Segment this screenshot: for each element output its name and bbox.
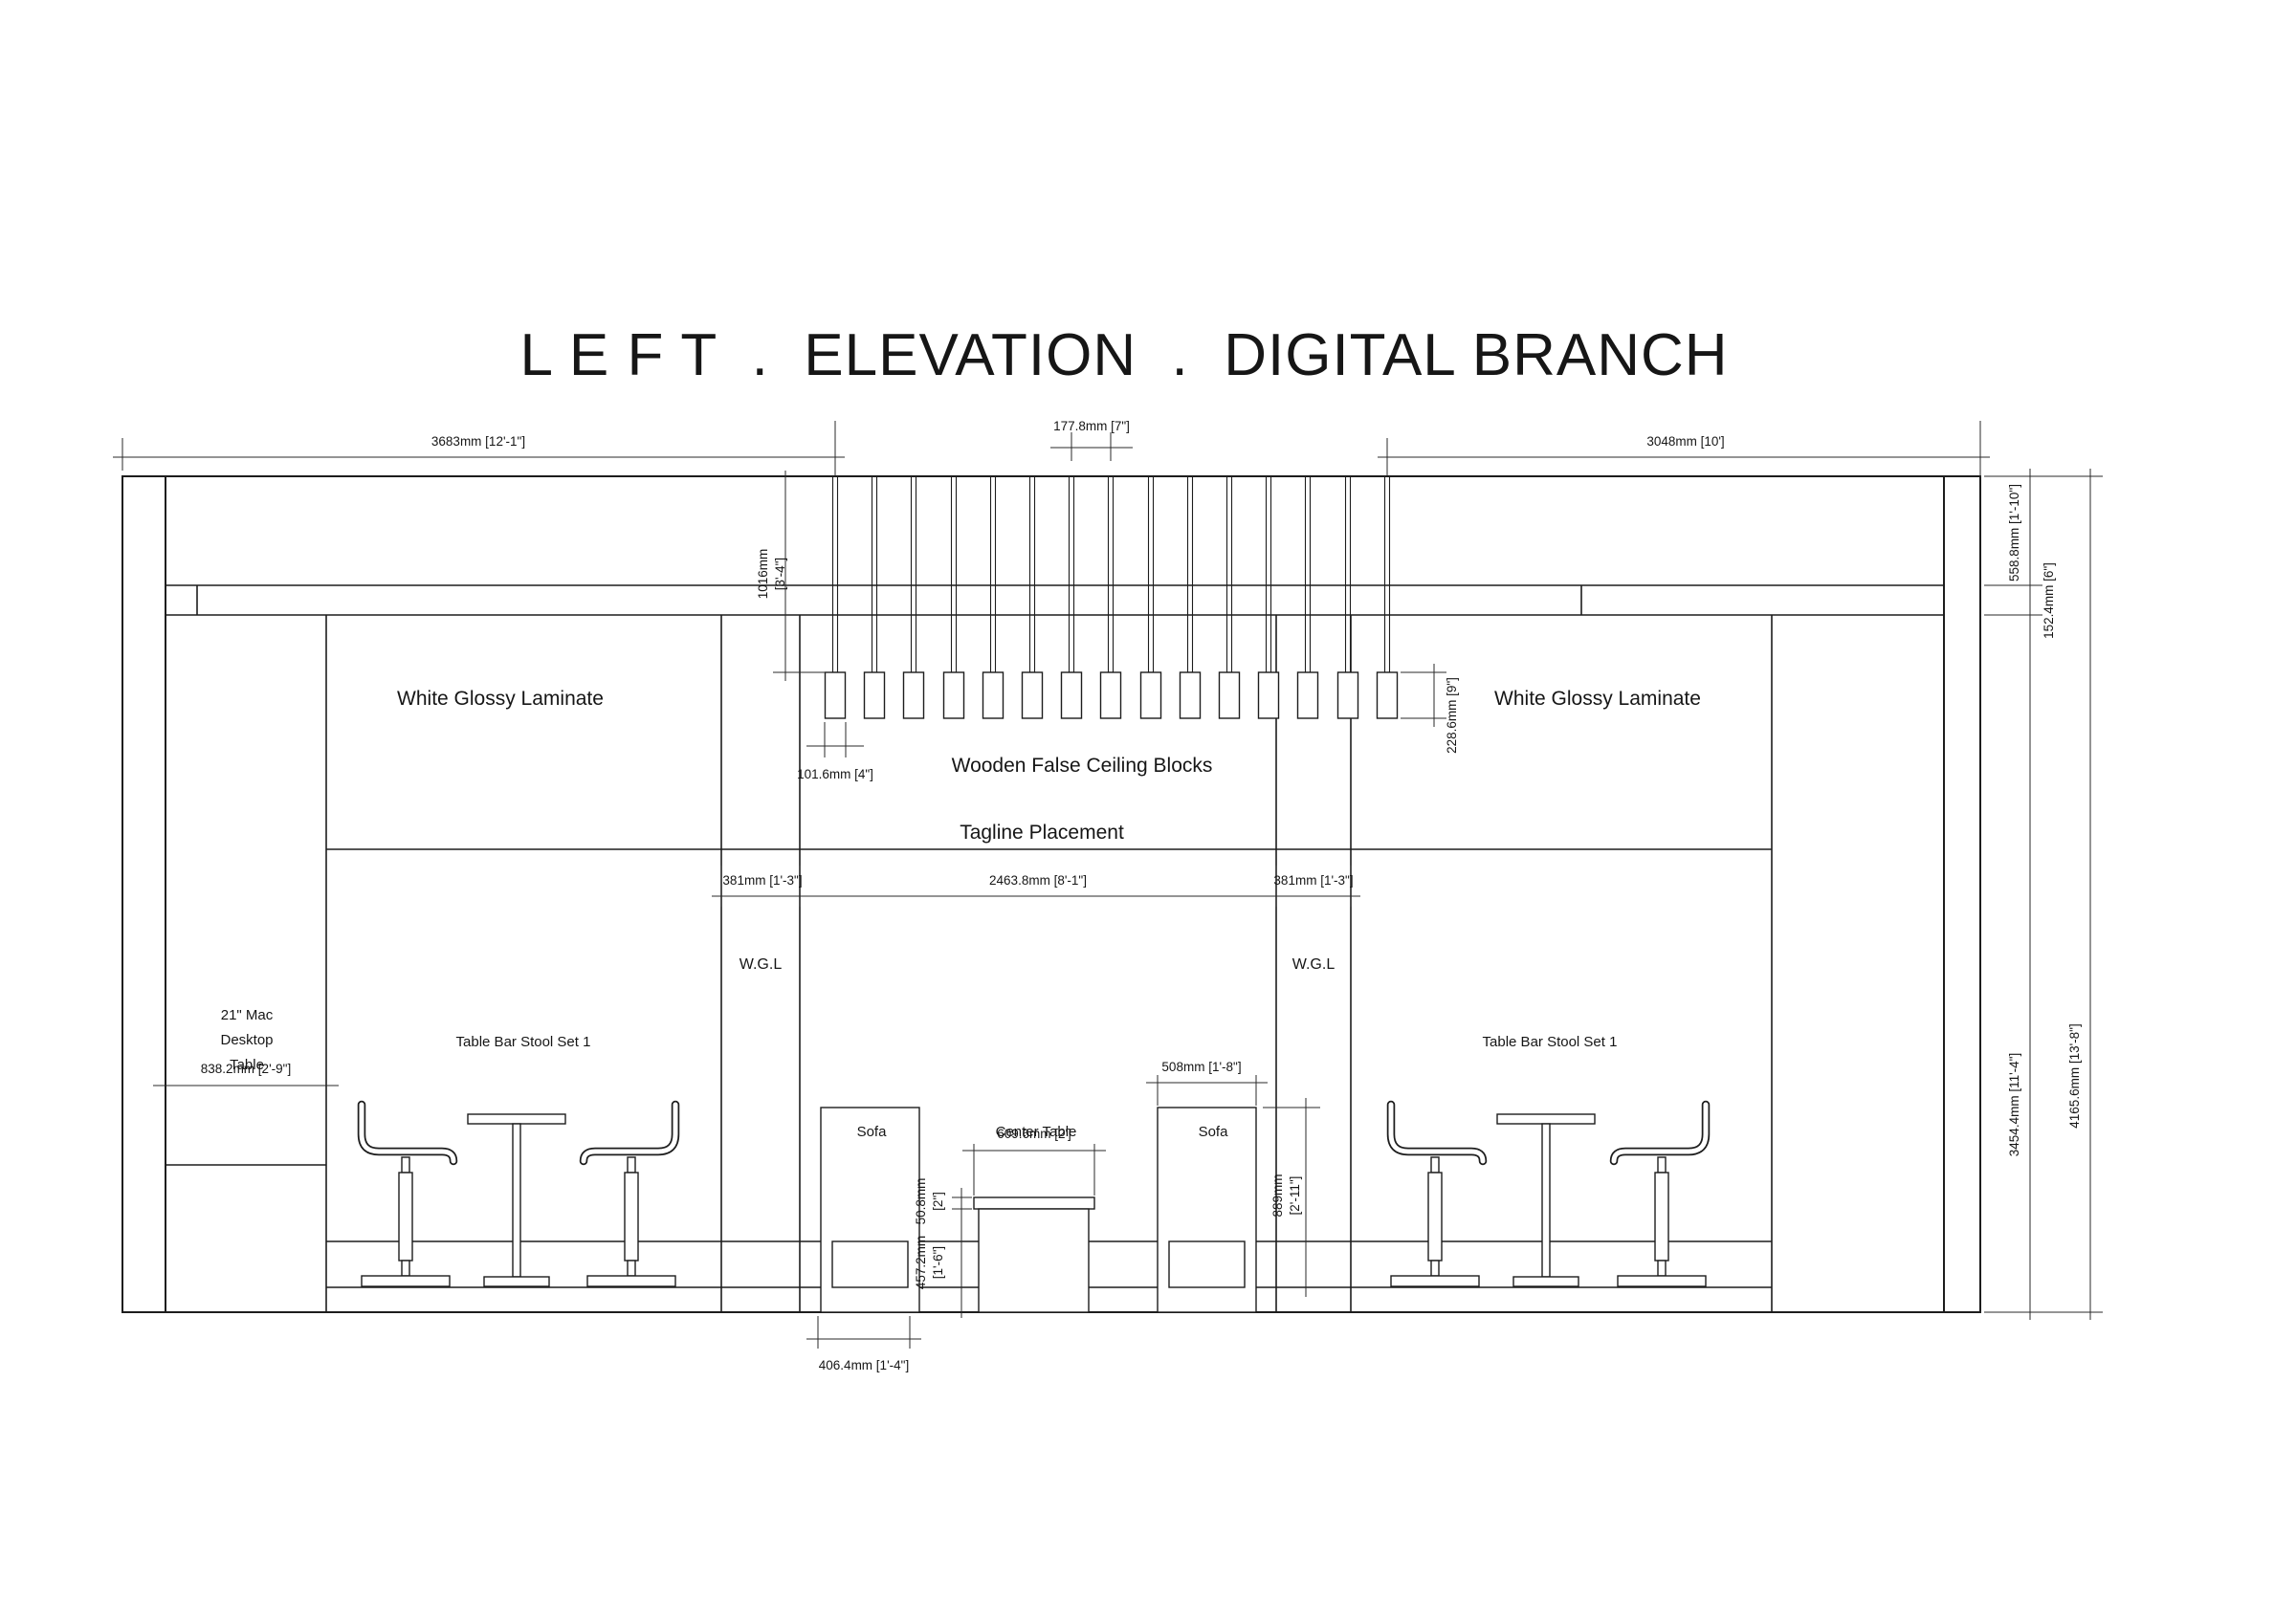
center-table-top: [974, 1197, 1094, 1209]
ceiling-pendant: [1141, 476, 1161, 718]
label-line: Table: [230, 1057, 264, 1073]
label-center-table: Center Table: [996, 1124, 1077, 1140]
center-table-body: [979, 1209, 1089, 1312]
dim-sofa-height: 889mm [2'-11"]: [1263, 1098, 1320, 1297]
dim-text: 889mm: [1270, 1174, 1285, 1217]
label-wgl-right: W.G.L: [1292, 956, 1336, 973]
ceiling-pendant: [1181, 476, 1201, 718]
dim-text: 457.2mm: [914, 1236, 928, 1289]
dim-sofa-width: 508mm [1'-8"]: [1146, 1060, 1268, 1106]
dim-text: [1'-6"]: [931, 1246, 945, 1279]
dim-text: [3'-4"]: [773, 558, 787, 590]
label-sofa-right: Sofa: [1199, 1124, 1229, 1140]
ceiling-pendant: [904, 476, 924, 718]
dim-text: 177.8mm [7"]: [1053, 419, 1130, 433]
dim-text: 4165.6mm [13'-8"]: [2067, 1023, 2082, 1128]
bar-stool-set-left: [362, 1105, 675, 1286]
dim-text: 381mm [1'-3"]: [722, 873, 802, 888]
label-sofa-left: Sofa: [857, 1124, 888, 1140]
ceiling-pendant: [1220, 476, 1240, 718]
dim-text: 3683mm [12'-1"]: [431, 434, 525, 449]
dim-text: 152.4mm [6"]: [2042, 562, 2056, 639]
dim-text: 3048mm [10']: [1646, 434, 1724, 449]
dim-base-width: 406.4mm [1'-4"]: [806, 1316, 921, 1372]
dim-panel-widths: 381mm [1'-3"] 2463.8mm [8'-1"] 381mm [1'…: [712, 866, 1360, 907]
dim-right-heights: 558.8mm [1'-10"] 152.4mm [6"] 3454.4mm […: [1984, 469, 2103, 1320]
page-title: L E F T . ELEVATION . DIGITAL BRANCH: [519, 322, 1728, 388]
ceiling-pendant: [865, 476, 885, 718]
label-table-bar-stool-right: Table Bar Stool Set 1: [1483, 1034, 1618, 1050]
dim-pendant-spacing: 177.8mm [7"]: [1050, 419, 1133, 461]
elevation-drawing: L E F T . ELEVATION . DIGITAL BRANCH: [0, 0, 2296, 1624]
dim-text: 228.6mm [9"]: [1445, 677, 1459, 754]
label-line: Desktop: [220, 1032, 273, 1048]
dim-text: [2'-11"]: [1288, 1176, 1302, 1216]
dim-block-height: 228.6mm [9"]: [1401, 664, 1459, 754]
dim-text: 50.8mm: [914, 1178, 928, 1225]
dim-block-width: 101.6mm [4"]: [797, 722, 873, 781]
dim-wall-right-width: 3048mm [10']: [1378, 421, 1990, 476]
label-wooden-false-ceiling: Wooden False Ceiling Blocks: [952, 755, 1213, 777]
ceiling-pendant: [1259, 476, 1279, 718]
bar-table: [468, 1114, 565, 1286]
dim-pendant-drop: 1016mm [3'-4"]: [756, 470, 830, 681]
label-tagline-placement: Tagline Placement: [960, 822, 1124, 844]
wooden-ceiling-pendants: [826, 476, 1398, 718]
label-white-glossy-left: White Glossy Laminate: [397, 688, 604, 710]
bar-stool: [1391, 1105, 1483, 1286]
ceiling-pendant: [1338, 476, 1358, 718]
ceiling-pendant: [1378, 476, 1398, 718]
center-table: [974, 1197, 1094, 1312]
dim-text: 381mm [1'-3"]: [1273, 873, 1353, 888]
dim-text: 101.6mm [4"]: [797, 767, 873, 781]
dim-wall-left-width: 3683mm [12'-1"]: [113, 421, 845, 476]
dim-text: 1016mm: [756, 549, 770, 600]
dim-text: 2463.8mm [8'-1"]: [989, 873, 1087, 888]
ceiling-pendant: [1062, 476, 1082, 718]
dim-text: [2"]: [931, 1192, 945, 1211]
bar-stool-set-right: [1391, 1105, 1706, 1286]
dim-table-heights: 50.8mm [2"] 457.2mm [1'-6"]: [914, 1178, 972, 1319]
ceiling-pendant: [983, 476, 1004, 718]
bar-stool: [362, 1105, 453, 1286]
label-white-glossy-right: White Glossy Laminate: [1494, 688, 1701, 710]
bar-stool: [584, 1105, 675, 1286]
dim-text: 406.4mm [1'-4"]: [819, 1358, 909, 1372]
label-wgl-left: W.G.L: [740, 956, 783, 973]
ceiling-pendant: [1101, 476, 1121, 718]
ceiling-pendant: [1023, 476, 1043, 718]
dim-text: 508mm [1'-8"]: [1161, 1060, 1241, 1074]
label-table-bar-stool-left: Table Bar Stool Set 1: [456, 1034, 591, 1050]
ceiling-pendant: [944, 476, 964, 718]
bar-table: [1497, 1114, 1595, 1286]
bar-stool: [1614, 1105, 1706, 1286]
ceiling-pendant: [1298, 476, 1318, 718]
dim-text: 558.8mm [1'-10"]: [2007, 484, 2021, 582]
dim-text: 3454.4mm [11'-4"]: [2007, 1053, 2021, 1156]
label-line: 21" Mac: [221, 1007, 274, 1023]
ceiling-pendant: [826, 476, 846, 718]
